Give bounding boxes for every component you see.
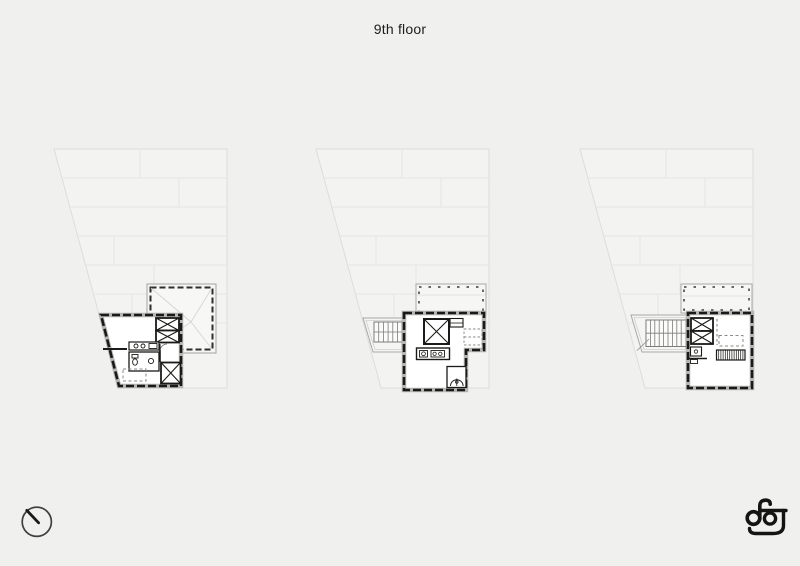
north-indicator-icon — [22, 507, 51, 536]
stair-treads — [374, 322, 402, 342]
hatched-bench — [717, 350, 746, 360]
drawing-sheet: 9th floor ag — [0, 0, 800, 566]
elevator-shaft — [691, 318, 717, 345]
roof-terrace-outline — [416, 284, 486, 315]
stair-shaft — [161, 363, 181, 384]
elevator-shaft — [156, 318, 179, 343]
stair-terrace — [363, 318, 404, 352]
floor-plan-drawing — [0, 0, 800, 566]
floor-plan-variant-2 — [316, 149, 489, 390]
kitchen-counter — [129, 342, 159, 350]
floor-plan-variant-1 — [54, 149, 227, 388]
floor-plan-variant-3 — [580, 149, 753, 388]
ag-logo — [747, 500, 786, 533]
bathroom — [447, 367, 466, 388]
roof-terrace-outline — [681, 284, 752, 313]
kitchen-island — [417, 348, 450, 360]
